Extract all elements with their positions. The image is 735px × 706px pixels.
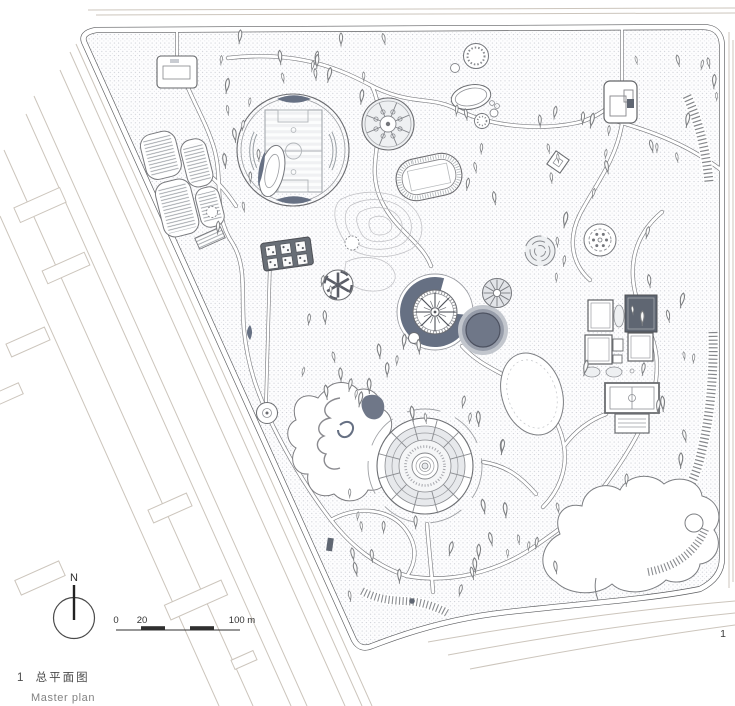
gallery-building: [604, 81, 637, 123]
svg-text:1 总平面图: 1 总平面图: [17, 670, 90, 684]
caption-title-zh: 总平面图: [36, 670, 90, 684]
reception-building: [157, 56, 197, 88]
scale-tick-20: 20: [137, 615, 148, 626]
pond: [458, 305, 508, 355]
north-label: N: [70, 572, 78, 584]
flower-garden: [362, 98, 414, 150]
scallop-plaza: [584, 224, 616, 256]
caption: 1 总平面图 Master plan: [17, 670, 95, 704]
star-plaza: [323, 270, 353, 300]
site-plan-drawing: N 0 20 100 m 1 1 总平面图 Master plan: [0, 0, 735, 706]
scale-tick-0: 0: [113, 615, 118, 626]
page-number: 1: [720, 628, 726, 640]
drawing-sheet: N 0 20 100 m 1 1 总平面图 Master plan: [0, 0, 735, 706]
spiral-garden: [525, 236, 555, 266]
sports-field-circle: [237, 94, 349, 206]
north-arrow: N: [54, 572, 95, 639]
scale-tick-100: 100 m: [229, 615, 255, 626]
caption-index: 1: [17, 672, 25, 684]
caption-title-en: Master plan: [31, 692, 95, 704]
spoke-wheel-garden: [483, 279, 512, 308]
